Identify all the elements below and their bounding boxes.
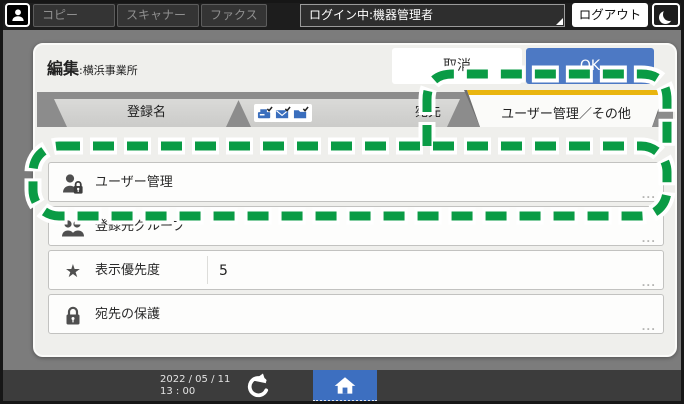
tab-registration-name[interactable]: 登録名 xyxy=(54,99,239,127)
tab-user-management-other[interactable]: ユーザー管理／その他 xyxy=(464,90,668,127)
email-check-icon xyxy=(275,106,291,121)
page-title-target: :横浜事業所 xyxy=(79,64,138,77)
folder-check-icon xyxy=(293,106,309,121)
more-indicator: ... xyxy=(642,191,656,201)
login-status-text: ログイン中:機器管理者 xyxy=(309,8,433,22)
home-button[interactable] xyxy=(313,370,377,402)
list-item-user-management[interactable]: ユーザー管理 ... xyxy=(48,162,664,202)
tab-user-management-other-label: ユーザー管理／その他 xyxy=(501,107,631,122)
cancel-button[interactable]: 取消 xyxy=(392,48,522,84)
page-title-main: 編集 xyxy=(47,59,79,78)
user-icon xyxy=(10,7,26,23)
logout-button[interactable]: ログアウト xyxy=(572,3,648,27)
list-item-label: 登録先グループ xyxy=(95,207,185,247)
app-tab-scanner[interactable]: スキャナー xyxy=(117,4,199,27)
bottom-system-bar: 2022 / 05 / 11 13 : 00 xyxy=(0,370,684,402)
user-account-button[interactable] xyxy=(5,3,30,27)
destination-type-icons xyxy=(254,104,312,122)
value-divider xyxy=(207,256,208,284)
time-text: 13 : 00 xyxy=(160,386,230,398)
device-screen: コピー スキャナー ファクス ログイン中:機器管理者 ログアウト 編集:横浜事業… xyxy=(0,0,684,404)
dropdown-corner-icon xyxy=(556,18,563,25)
energy-saver-button[interactable] xyxy=(652,3,680,27)
more-indicator: ... xyxy=(642,279,656,289)
list-item-registration-group[interactable]: 登録先グループ ... xyxy=(48,206,664,246)
list-item-label: ユーザー管理 xyxy=(95,163,173,203)
moon-icon xyxy=(663,8,676,21)
date-time: 2022 / 05 / 11 13 : 00 xyxy=(160,374,230,398)
active-tab-indicator xyxy=(467,90,665,95)
app-tab-copy[interactable]: コピー xyxy=(33,4,115,27)
ok-button[interactable]: OK xyxy=(526,48,654,84)
tab-destination[interactable]: 宛先 xyxy=(238,99,460,127)
undo-arrow-icon xyxy=(240,373,274,399)
user-lock-icon xyxy=(61,172,85,196)
list-item-destination-protection[interactable]: 宛先の保護 ... xyxy=(48,294,664,334)
group-icon xyxy=(61,216,85,240)
fax-check-icon xyxy=(257,106,273,121)
list-item-display-priority[interactable]: ★ 表示優先度 5 ... xyxy=(48,250,664,290)
date-text: 2022 / 05 / 11 xyxy=(160,374,230,386)
app-tab-fax[interactable]: ファクス xyxy=(201,4,267,27)
list-item-label: 表示優先度 xyxy=(95,251,160,291)
back-button[interactable] xyxy=(240,373,274,399)
more-indicator: ... xyxy=(642,323,656,333)
display-priority-value: 5 xyxy=(219,251,228,291)
page-title: 編集:横浜事業所 xyxy=(47,55,138,79)
list-item-label: 宛先の保護 xyxy=(95,295,160,335)
home-icon xyxy=(333,374,357,396)
top-status-bar: コピー スキャナー ファクス ログイン中:機器管理者 ログアウト xyxy=(0,0,684,30)
star-icon: ★ xyxy=(61,260,85,284)
edit-address-panel: 編集:横浜事業所 取消 OK 登録名 xyxy=(33,43,677,357)
lock-icon xyxy=(61,304,85,328)
more-indicator: ... xyxy=(642,235,656,245)
login-status-dropdown[interactable]: ログイン中:機器管理者 xyxy=(300,4,565,27)
